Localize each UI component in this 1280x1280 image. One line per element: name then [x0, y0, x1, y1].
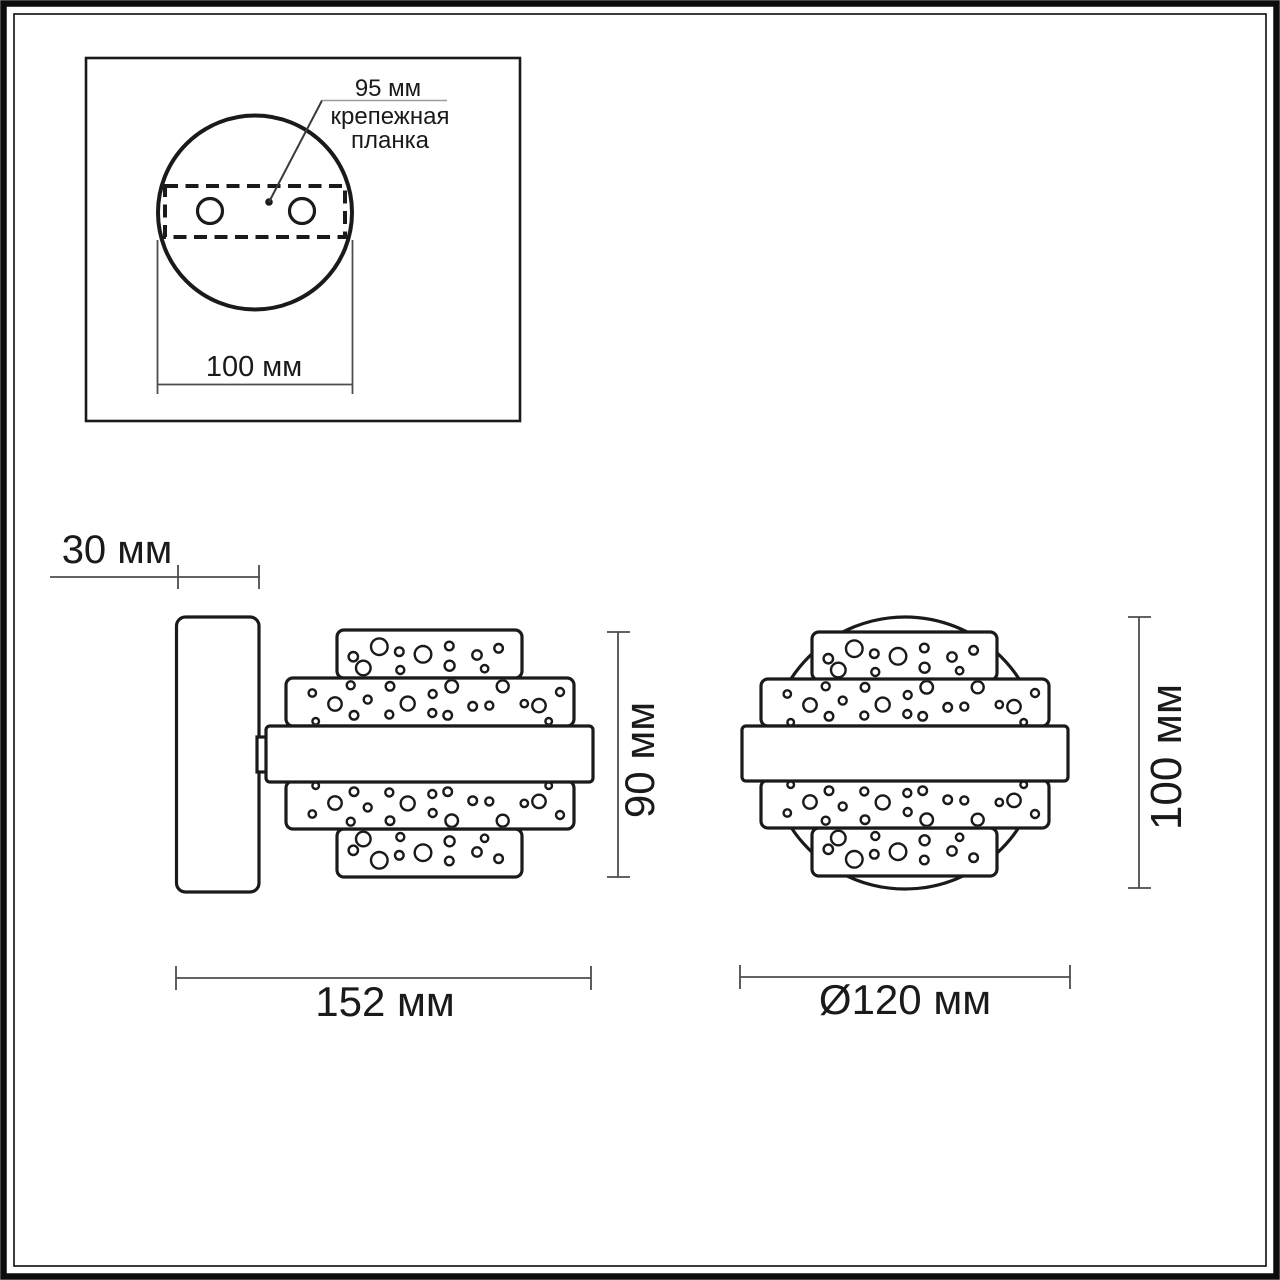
side-center-band — [266, 726, 593, 782]
bracket-label-line2: планка — [351, 127, 430, 154]
inset-width-label: 100 мм — [206, 351, 302, 383]
spacing-label: 95 мм — [355, 75, 421, 102]
backplate-circle — [158, 116, 352, 310]
mounting-inset: 95 мм крепежная планка 100 мм — [86, 58, 520, 421]
wall-plate-side — [177, 617, 260, 892]
technical-drawing: 95 мм крепежная планка 100 мм 30 мм — [0, 0, 1280, 1280]
side-height-label: 90 мм — [616, 702, 663, 818]
front-diameter-label: Ø120 мм — [819, 976, 991, 1023]
front-view: 100 мм Ø120 мм — [740, 617, 1191, 1023]
side-depth-label: 152 мм — [315, 978, 455, 1025]
side-view: 30 мм 90 мм 152 мм — [50, 528, 663, 1025]
front-height-label: 100 мм — [1142, 684, 1191, 830]
bracket-label-line1: крепежная — [331, 103, 450, 130]
wall-offset-label: 30 мм — [62, 528, 173, 572]
front-center-band — [742, 726, 1068, 781]
